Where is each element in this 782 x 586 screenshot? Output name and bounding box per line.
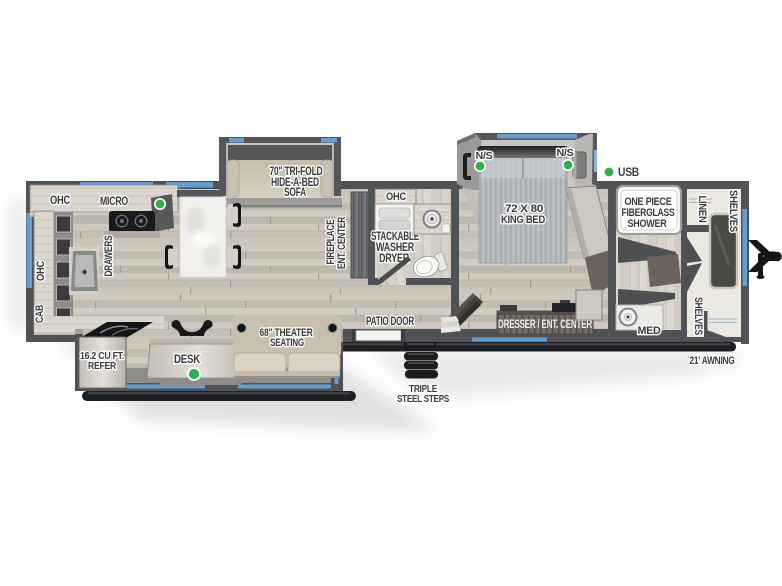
svg-text:OHC: OHC <box>386 191 406 203</box>
svg-text:MED: MED <box>638 325 661 337</box>
svg-text:CAB: CAB <box>34 305 46 323</box>
svg-text:SHELVES: SHELVES <box>692 297 704 335</box>
svg-text:REFER: REFER <box>88 360 117 372</box>
svg-text:N/S: N/S <box>557 148 575 159</box>
svg-text:STEEL STEPS: STEEL STEPS <box>397 394 450 405</box>
svg-text:OHC: OHC <box>50 193 70 207</box>
svg-text:USB: USB <box>618 165 640 179</box>
svg-text:SOFA: SOFA <box>284 187 306 199</box>
svg-text:OHC: OHC <box>35 261 47 281</box>
svg-text:SHELVES: SHELVES <box>727 190 739 232</box>
svg-text:SHOWER: SHOWER <box>628 218 667 230</box>
svg-text:MICRO: MICRO <box>100 194 128 208</box>
svg-text:LINEN: LINEN <box>696 196 708 223</box>
svg-text:DESK: DESK <box>174 352 201 366</box>
svg-text:DRAWERS: DRAWERS <box>103 236 115 277</box>
svg-text:SEATING: SEATING <box>270 337 304 349</box>
svg-text:KING BED: KING BED <box>501 214 545 226</box>
svg-text:21' AWNING: 21' AWNING <box>690 355 735 367</box>
svg-text:PATIO DOOR: PATIO DOOR <box>366 314 414 328</box>
svg-text:ENT. CENTER: ENT. CENTER <box>336 217 348 269</box>
